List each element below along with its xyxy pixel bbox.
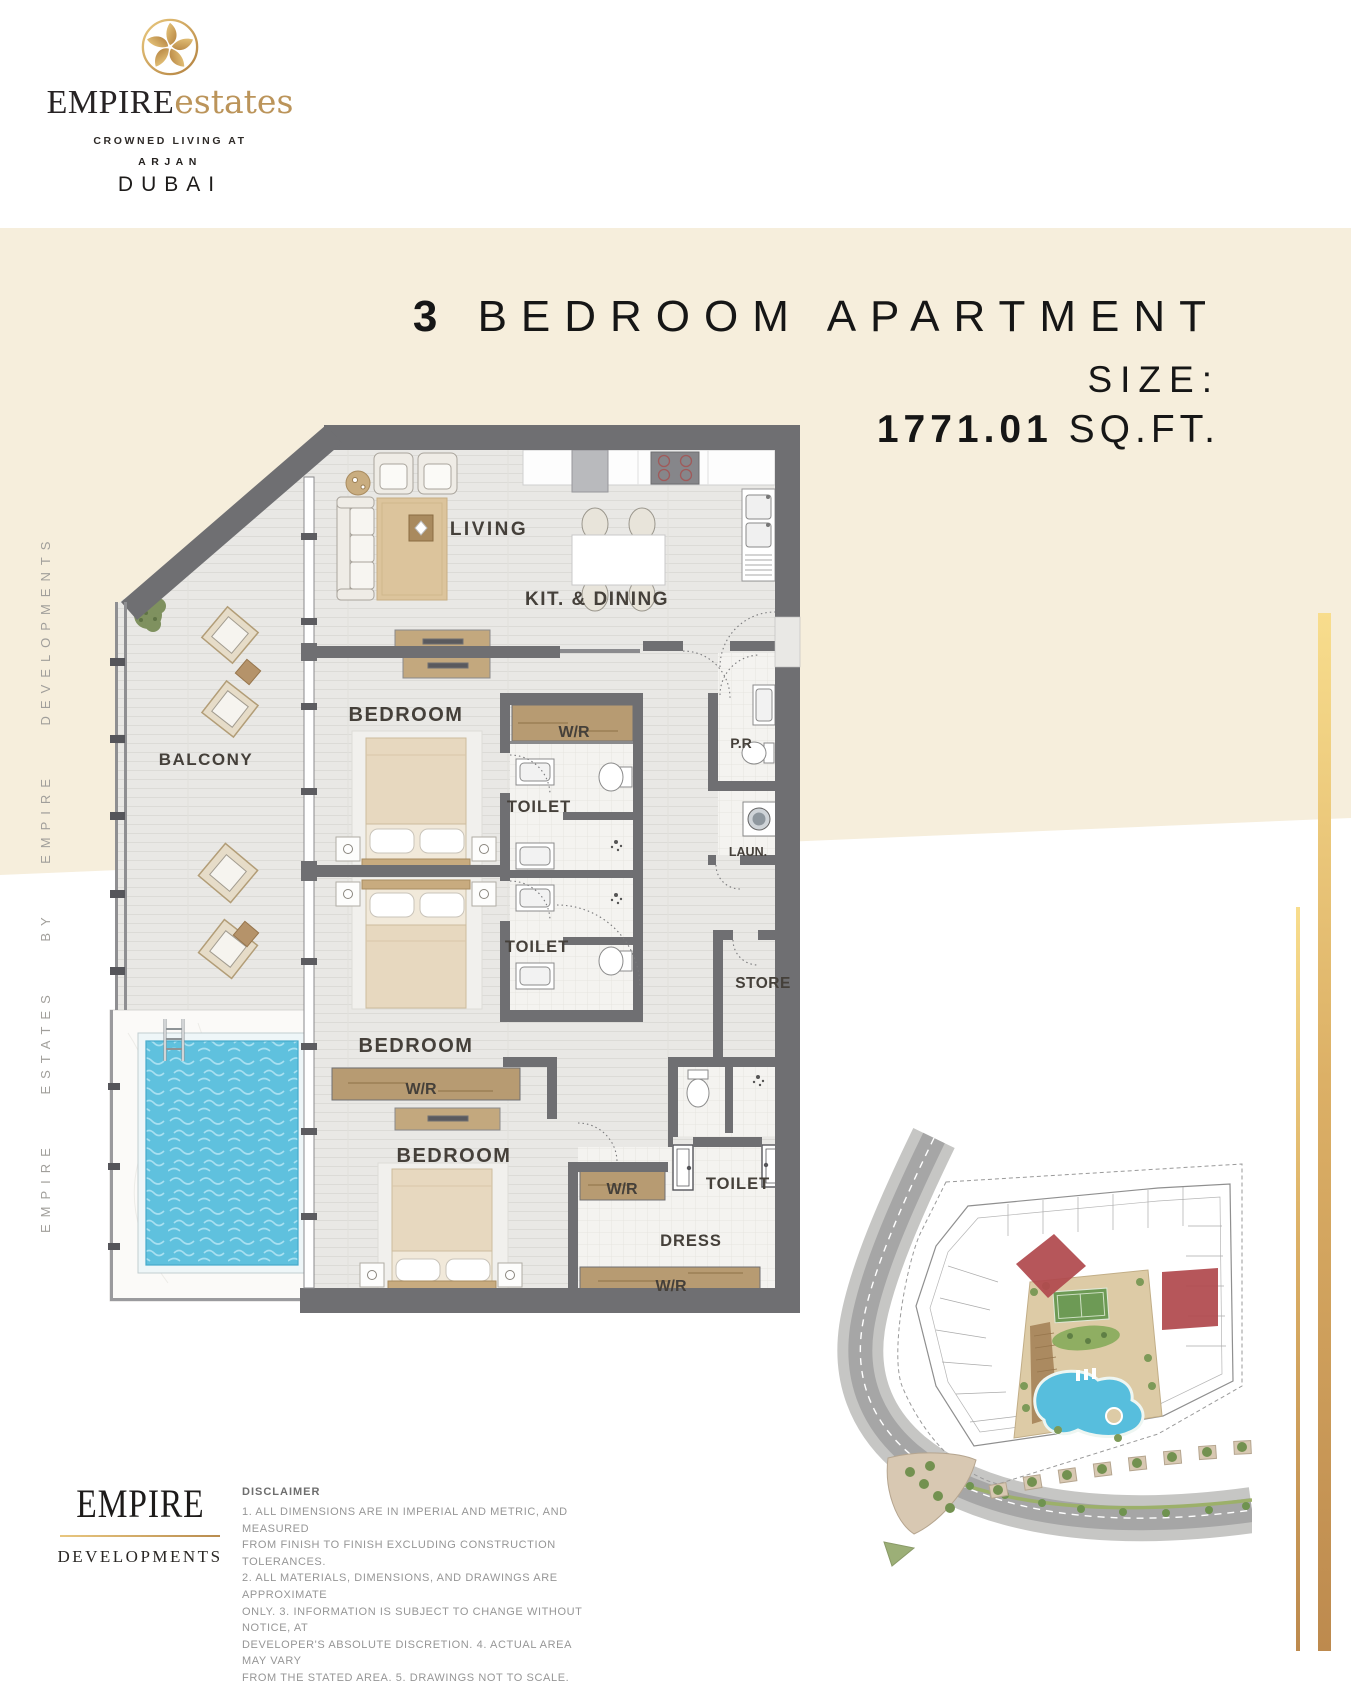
room-label-kit-dining: KIT. & DINING: [525, 589, 669, 610]
disclaimer-line: FROM THE STATED AREA. 5. DRAWINGS NOT TO…: [242, 1670, 587, 1687]
bedroom1-bed: [336, 731, 496, 868]
disclaimer-line: 2. ALL MATERIALS, DIMENSIONS, AND DRAWIN…: [242, 1570, 587, 1603]
brand-location-city: DUBAI: [35, 173, 305, 197]
disclaimer-block: DISCLAIMER 1. ALL DIMENSIONS ARE IN IMPE…: [242, 1486, 587, 1687]
brand-primary: EMPIRE: [47, 84, 175, 121]
disclaimer-line: DEVELOPER'S ABSOLUTE DISCRETION. 4. ACTU…: [242, 1637, 587, 1670]
living-furniture: [337, 453, 457, 600]
room-label-toilet-2: TOILET: [505, 938, 569, 956]
bedroom3-bed: [360, 1163, 522, 1291]
sofa: [337, 497, 374, 600]
developer-logo-secondary: DEVELOPMENTS: [55, 1547, 225, 1567]
room-label-bedroom-2: BEDROOM: [359, 1035, 474, 1057]
room-label-balcony: BALCONY: [159, 750, 254, 769]
brand-header: EMPIREestates CROWNED LIVING AT ARJAN DU…: [35, 16, 305, 197]
site-courtyard: [1014, 1270, 1162, 1442]
brand-location-area: ARJAN: [35, 156, 305, 168]
plunge-pool: [138, 1019, 306, 1273]
empire-estates-emblem-icon: [139, 16, 201, 78]
gold-accent-bar-wide: [1318, 613, 1331, 1651]
room-label-pr: P.R: [730, 735, 752, 751]
kitchen-sink-icon: [742, 489, 775, 581]
disclaimer-line: ONLY. 3. INFORMATION IS SUBJECT TO CHANG…: [242, 1604, 587, 1637]
developer-logo: EMPIRE DEVELOPMENTS: [55, 1480, 225, 1567]
room-label-bedroom-1: BEDROOM: [349, 704, 464, 726]
sliding-door: [560, 649, 640, 653]
brand-wordmark: EMPIREestates: [35, 82, 305, 122]
room-label-dress: DRESS: [660, 1232, 722, 1250]
vertical-side-text: EMPIRE ESTATES BY EMPIRE DEVELOPMENTS: [38, 385, 66, 1233]
floor-plan: LIVING KIT. & DINING BEDROOM BEDROOM BED…: [108, 393, 803, 1318]
developer-logo-primary: EMPIRE: [76, 1480, 204, 1527]
unit-title: 3 BEDROOM APARTMENT: [413, 292, 1220, 342]
room-label-wr-4: W/R: [655, 1278, 687, 1295]
entrance-opening: [775, 617, 800, 667]
size-value: 1771.01: [877, 408, 1053, 451]
tennis-court: [1053, 1288, 1109, 1323]
room-label-bedroom-3: BEDROOM: [397, 1145, 512, 1167]
unit-type: BEDROOM APARTMENT: [478, 292, 1220, 341]
room-label-toilet-3: TOILET: [706, 1175, 770, 1193]
room-label-laun: LAUN.: [729, 845, 767, 859]
room-label-store: STORE: [735, 975, 791, 992]
traffic-island: [884, 1542, 914, 1566]
site-plan: [818, 1086, 1252, 1568]
disclaimer-title: DISCLAIMER: [242, 1486, 587, 1498]
brand-secondary: estates: [174, 82, 293, 121]
room-label-wr-3: W/R: [606, 1181, 638, 1198]
unit-number: 3: [413, 292, 451, 341]
gold-divider: [60, 1535, 220, 1537]
room-label-wr-1: W/R: [558, 724, 590, 741]
brand-tagline: CROWNED LIVING AT: [35, 135, 305, 147]
bedroom2-bed: [336, 877, 496, 1009]
disclaimer-line: 1. ALL DIMENSIONS ARE IN IMPERIAL AND ME…: [242, 1504, 587, 1537]
room-label-wr-2: W/R: [405, 1081, 437, 1098]
washing-machine-icon: [743, 802, 776, 836]
room-label-toilet-1: TOILET: [507, 798, 571, 816]
room-label-living: LIVING: [450, 519, 528, 540]
size-unit: SQ.FT.: [1069, 408, 1220, 451]
gold-accent-bar-thin: [1296, 907, 1300, 1651]
disclaimer-line: FROM FINISH TO FINISH EXCLUDING CONSTRUC…: [242, 1537, 587, 1570]
